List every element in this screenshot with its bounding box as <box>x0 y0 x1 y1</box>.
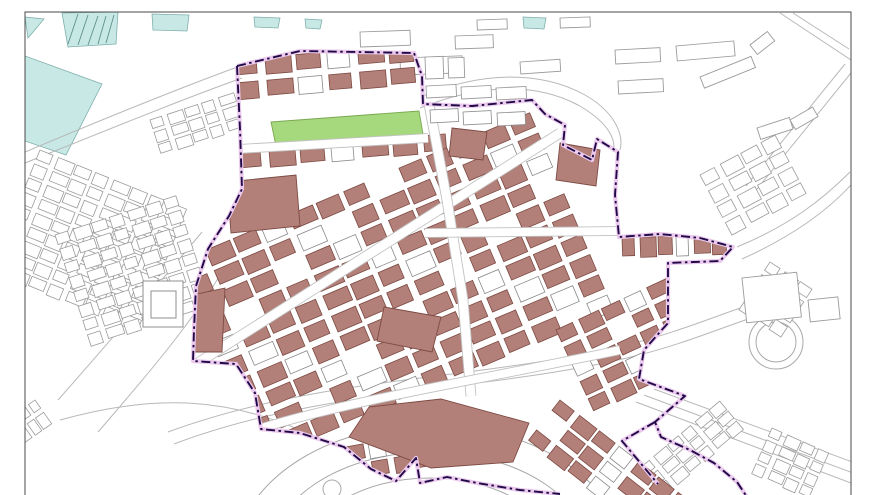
water-area <box>254 17 280 28</box>
building-block <box>296 53 321 70</box>
outside-building <box>615 48 661 64</box>
outside-building <box>8 433 23 449</box>
large-building-block <box>449 128 487 160</box>
outside-building <box>742 272 801 323</box>
building-block <box>640 237 657 258</box>
outside-building <box>560 17 590 28</box>
water-area <box>305 19 322 29</box>
unbuilt-plot <box>298 75 323 94</box>
outside-building <box>425 56 444 79</box>
outside-building <box>461 85 492 99</box>
outside-building <box>360 30 410 47</box>
map-page <box>0 0 880 495</box>
outside-building <box>808 297 840 322</box>
outside-building <box>477 19 507 30</box>
outside-building <box>0 247 14 263</box>
outside-building <box>3 233 20 248</box>
building-block <box>360 70 387 89</box>
outside-building <box>496 86 527 100</box>
outside-building <box>7 220 24 236</box>
outside-building <box>0 421 11 435</box>
water-area <box>523 17 546 29</box>
map-svg <box>0 0 880 495</box>
unbuilt-plot <box>497 112 526 126</box>
building-block <box>329 73 352 90</box>
building-block <box>267 78 294 95</box>
building-block <box>622 238 635 256</box>
building-block <box>390 67 415 84</box>
public-building-outline <box>151 291 176 318</box>
outside-building <box>455 35 493 49</box>
outside-building <box>426 84 457 98</box>
outside-building <box>9 414 21 427</box>
unbuilt-plot <box>463 111 492 125</box>
street <box>425 231 618 233</box>
map-content <box>0 0 880 495</box>
water-area <box>152 14 189 31</box>
building-block <box>658 236 673 254</box>
outside-building <box>0 261 8 276</box>
outside-building <box>520 59 561 74</box>
outside-building <box>618 79 664 94</box>
outside-building <box>448 57 465 78</box>
city-district-map <box>0 0 880 495</box>
unbuilt-plot <box>430 109 459 123</box>
